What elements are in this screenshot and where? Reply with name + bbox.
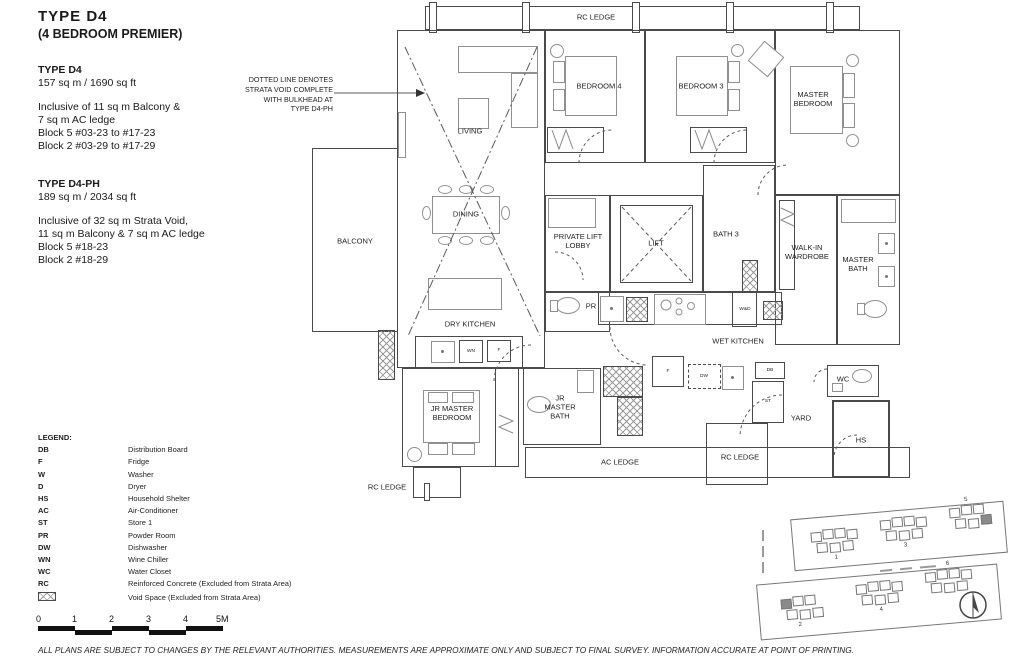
plan-graphic xyxy=(880,569,892,572)
plan-graphic xyxy=(810,532,822,543)
label-st: ST xyxy=(765,399,771,405)
legend-row: DWDishwasher xyxy=(38,542,298,554)
block-cluster: 6 xyxy=(925,569,977,599)
tv-console xyxy=(398,112,406,158)
bed-bench xyxy=(452,443,475,455)
spec-d4-line: Block 5 #03-23 to #17-23 xyxy=(38,127,268,140)
jr-wardrobe xyxy=(495,368,519,467)
coffee-table xyxy=(458,98,489,129)
plan-graphic: STRATA VOID COMPLETE xyxy=(243,85,333,95)
block-cluster-highlighted: 5 xyxy=(949,504,1001,534)
block-number: 2 xyxy=(798,622,802,628)
pillow xyxy=(843,73,855,98)
label-dining: DINING xyxy=(453,210,479,219)
dining-chair xyxy=(422,206,431,220)
legend-title: LEGEND: xyxy=(38,432,298,444)
toilet-tank xyxy=(857,303,865,315)
window-tick xyxy=(726,2,734,33)
sink-dot xyxy=(731,376,734,379)
pillow xyxy=(452,392,474,403)
wardrobe xyxy=(547,127,604,153)
plan-graphic xyxy=(911,528,923,539)
label-dry-kitchen: DRY KITCHEN xyxy=(445,320,496,329)
plan-graphic: F xyxy=(38,456,128,468)
legend-row: DBDistribution Board xyxy=(38,444,298,456)
window-tick xyxy=(826,2,834,33)
spec-d4-line: Inclusive of 11 sq m Balcony & xyxy=(38,101,268,114)
plan-graphic xyxy=(955,518,967,529)
label-db: DB xyxy=(767,368,774,374)
toilet-tank xyxy=(550,300,558,312)
plan-graphic xyxy=(936,569,948,580)
label-bedroom-4: BEDROOM 4 xyxy=(576,82,621,91)
spec-d4ph-area: 189 sq m / 2034 sq ft xyxy=(38,191,268,204)
page-subtitle: (4 BEDROOM PREMIER) xyxy=(38,27,182,41)
plan-graphic: RC xyxy=(38,578,128,590)
label-bath-3: BATH 3 xyxy=(713,230,739,239)
plan-graphic xyxy=(925,572,937,583)
void-space-icon xyxy=(38,592,56,601)
label-jr-master-bath: JR MASTER BATH xyxy=(541,394,579,421)
label-master-bath: MASTER BATH xyxy=(839,255,877,273)
scale-segment xyxy=(112,626,149,631)
street-text-mark xyxy=(762,530,764,541)
sink-dot xyxy=(885,275,888,278)
void-column xyxy=(378,330,395,380)
spec-d4ph-line: Block 5 #18-23 xyxy=(38,241,268,254)
plan-graphic: TYPE D4-PH xyxy=(243,104,333,114)
spec-d4-name: TYPE D4 xyxy=(38,64,268,77)
plan-graphic: DOTTED LINE DENOTES xyxy=(243,75,333,85)
plan-graphic: W xyxy=(38,469,128,481)
sofa xyxy=(511,73,538,128)
bed-bench xyxy=(428,443,448,455)
plan-graphic xyxy=(874,594,886,605)
street-text-mark xyxy=(762,562,764,573)
plan-graphic xyxy=(886,530,898,541)
plan-graphic: HS xyxy=(38,493,128,505)
window-tick xyxy=(429,2,437,33)
plan-graphic xyxy=(816,542,828,553)
plan-graphic: D xyxy=(38,481,128,493)
void-duct xyxy=(603,366,643,397)
disclaimer: ALL PLANS ARE SUBJECT TO CHANGES BY THE … xyxy=(38,645,854,655)
plan-graphic xyxy=(915,517,927,528)
scale-tick: 3 xyxy=(146,614,151,624)
rc-ledge-bottom-left-strip xyxy=(413,467,461,498)
plan-graphic xyxy=(900,567,912,570)
plan-graphic xyxy=(799,609,811,620)
plan-graphic xyxy=(948,568,960,579)
dining-chair xyxy=(459,236,473,245)
plan-graphic xyxy=(920,565,936,568)
basin xyxy=(577,370,594,393)
label-dw: DW xyxy=(700,374,708,380)
plan-graphic xyxy=(961,569,973,580)
wardrobe xyxy=(690,127,747,153)
plan-graphic: PR xyxy=(38,530,128,542)
toilet xyxy=(556,297,580,314)
block-number: 4 xyxy=(879,607,883,613)
legend-row: FFridge xyxy=(38,456,298,468)
label-rc-ledge-top: RC LEDGE xyxy=(577,13,615,22)
wc-room xyxy=(827,365,879,397)
block-number: 5 xyxy=(964,497,968,503)
void-duct xyxy=(617,397,643,436)
label-balcony: BALCONY xyxy=(337,237,373,246)
label-private-lift-lobby: PRIVATE LIFT LOBBY xyxy=(552,232,604,250)
label-bedroom-3: BEDROOM 3 xyxy=(678,82,723,91)
label-hs: HS xyxy=(856,436,866,445)
plan-graphic: Dishwasher xyxy=(128,543,167,552)
plan-graphic xyxy=(786,609,798,620)
plan-graphic xyxy=(956,580,968,591)
block-number: 3 xyxy=(904,542,908,548)
block-cluster: 4 xyxy=(855,581,907,611)
plan-graphic: AC xyxy=(38,505,128,517)
scale-tick: 0 xyxy=(36,614,41,624)
plan-graphic xyxy=(842,540,854,551)
legend-row: PRPowder Room xyxy=(38,530,298,542)
plan-graphic xyxy=(855,584,867,595)
legend-row: HSHousehold Shelter xyxy=(38,493,298,505)
plan-graphic xyxy=(804,595,816,606)
scale-tick: 1 xyxy=(72,614,77,624)
legend-row: ACAir-Conditioner xyxy=(38,505,298,517)
plan-graphic: WITH BULKHEAD AT xyxy=(243,95,333,105)
label-wc: WC xyxy=(837,375,850,384)
sink-dot xyxy=(885,242,888,245)
plan-graphic: Reinforced Concrete (Excluded from Strat… xyxy=(128,579,291,588)
site-key-plan: 1 3 5 2 xyxy=(750,498,1020,633)
plan-graphic: WC xyxy=(38,566,128,578)
bath-3-room xyxy=(703,165,775,292)
side-table xyxy=(550,44,564,58)
pillow xyxy=(728,61,740,83)
legend-row: STStore 1 xyxy=(38,517,298,529)
toilet xyxy=(863,300,887,318)
spec-d4-line: 7 sq m AC ledge xyxy=(38,114,268,127)
dining-chair xyxy=(480,185,494,194)
label-living: LIVING xyxy=(458,127,483,136)
dining-chair xyxy=(438,185,452,194)
duct-box xyxy=(626,297,648,322)
plan-graphic: Wine Chiller xyxy=(128,555,168,564)
plan-graphic: Distribution Board xyxy=(128,445,188,454)
spec-d4-line: Block 2 #03-29 to #17-29 xyxy=(38,140,268,153)
plan-graphic xyxy=(829,542,841,553)
plan-graphic xyxy=(899,530,911,541)
plan-graphic xyxy=(38,204,268,215)
plan-graphic xyxy=(891,517,903,528)
plan-graphic xyxy=(834,528,846,539)
dining-chair xyxy=(438,236,452,245)
plan-graphic xyxy=(822,529,834,540)
plan-graphic: Fridge xyxy=(128,457,149,466)
label-ac-ledge: AC LEDGE xyxy=(601,458,639,467)
legend-row: DDryer xyxy=(38,481,298,493)
street-text-mark xyxy=(762,546,764,557)
site-parcel-bottom: 2 4 6 xyxy=(756,564,1002,641)
plan-graphic: Void Space (Excluded from Strata Area) xyxy=(128,593,261,602)
plan-graphic: WN xyxy=(38,554,128,566)
plan-graphic xyxy=(861,595,873,606)
wc-door-arc xyxy=(814,369,827,382)
plan-graphic xyxy=(891,581,903,592)
pillow xyxy=(553,61,565,83)
pillow xyxy=(728,89,740,111)
plan-graphic xyxy=(931,582,943,593)
plan-graphic xyxy=(38,90,268,101)
plan-graphic xyxy=(903,516,915,527)
sink-dot xyxy=(441,350,444,353)
plan-graphic xyxy=(968,518,980,529)
scale-tick: 4 xyxy=(183,614,188,624)
plan-graphic xyxy=(792,596,804,607)
floor-plan-page: TYPE D4 (4 BEDROOM PREMIER) TYPE D4 157 … xyxy=(0,0,1024,662)
kitchen-island xyxy=(428,278,502,310)
label-rc-ledge-bottom-right: RC LEDGE xyxy=(721,453,759,462)
legend-row: WWasher xyxy=(38,469,298,481)
hob xyxy=(654,294,706,325)
plan-graphic xyxy=(973,504,985,515)
console-cabinet xyxy=(548,198,596,228)
scale-segment xyxy=(75,630,112,635)
pillow xyxy=(428,392,448,403)
plan-graphic: Water Closet xyxy=(128,567,171,576)
plan-graphic xyxy=(961,505,973,516)
dining-chair xyxy=(459,185,473,194)
legend-row: WNWine Chiller xyxy=(38,554,298,566)
strata-void-note: DOTTED LINE DENOTES STRATA VOID COMPLETE… xyxy=(243,75,333,114)
spec-d4-area: 157 sq m / 1690 sq ft xyxy=(38,77,268,90)
label-jr-master-bedroom: JR MASTER BEDROOM xyxy=(421,404,483,422)
plan-graphic xyxy=(812,607,824,618)
plan-graphic: DB xyxy=(38,444,128,456)
block-cluster: 1 xyxy=(810,528,862,558)
label-pr: PR xyxy=(586,302,596,311)
duct-box xyxy=(763,301,783,320)
pillow xyxy=(843,103,855,128)
legend-row: RCReinforced Concrete (Excluded from Str… xyxy=(38,578,298,590)
plan-graphic: DW xyxy=(38,542,128,554)
block-cluster-highlighted: 2 xyxy=(780,593,832,623)
dining-chair xyxy=(501,206,510,220)
block-cluster: 3 xyxy=(880,516,932,546)
rc-ledge-top xyxy=(425,6,860,30)
legend-row-void: Void Space (Excluded from Strata Area) xyxy=(38,591,298,604)
spec-type-d4: TYPE D4 157 sq m / 1690 sq ft Inclusive … xyxy=(38,64,268,153)
plan-graphic: ST xyxy=(38,517,128,529)
spec-d4ph-line: Block 2 #18-29 xyxy=(38,254,268,267)
plan-graphic: Household Shelter xyxy=(128,494,190,503)
legend: LEGEND: DBDistribution Board FFridge WWa… xyxy=(38,432,298,604)
dining-chair xyxy=(480,236,494,245)
plan-graphic: Air-Conditioner xyxy=(128,506,178,515)
label-f-dry: F xyxy=(498,348,501,354)
plan-graphic xyxy=(944,582,956,593)
plan-graphic xyxy=(38,591,128,604)
sink-dot xyxy=(610,307,613,310)
side-table xyxy=(846,134,859,147)
label-rc-ledge-bottom-left: RC LEDGE xyxy=(368,483,406,492)
scale-tick: 5M xyxy=(216,614,229,624)
plan-graphic xyxy=(880,520,892,531)
window-tick xyxy=(522,2,530,33)
window-tick xyxy=(424,483,430,501)
spec-d4ph-line: 11 sq m Balcony & 7 sq m AC ledge xyxy=(38,228,268,241)
window-tick xyxy=(632,2,640,33)
label-walk-in-wardrobe: WALK-IN WARDROBE xyxy=(782,243,832,261)
shower xyxy=(841,199,896,223)
spec-d4ph-line: Inclusive of 32 sq m Strata Void, xyxy=(38,215,268,228)
block-number: 1 xyxy=(834,554,838,560)
scale-segment xyxy=(149,630,186,635)
plan-graphic xyxy=(846,529,858,540)
plan-graphic: Washer xyxy=(128,470,154,479)
label-master-bedroom: MASTER BEDROOM xyxy=(788,90,838,108)
highlighted-unit xyxy=(980,514,992,525)
plan-graphic xyxy=(867,581,879,592)
plan-graphic xyxy=(949,508,961,519)
block-number: 6 xyxy=(946,561,950,567)
side-table xyxy=(407,447,422,462)
sofa xyxy=(458,46,538,73)
scale-tick: 2 xyxy=(109,614,114,624)
plan-graphic: Powder Room xyxy=(128,531,176,540)
basin xyxy=(832,383,843,392)
side-table xyxy=(731,44,744,57)
entry-door-arc xyxy=(610,327,648,365)
plan-graphic xyxy=(879,580,891,591)
toilet xyxy=(852,369,872,383)
highlighted-unit xyxy=(780,599,792,610)
label-yard: YARD xyxy=(791,414,811,423)
legend-row: WCWater Closet xyxy=(38,566,298,578)
label-wn: WN xyxy=(467,349,475,355)
plan-graphic: Store 1 xyxy=(128,518,152,527)
scale-segment xyxy=(186,626,223,631)
label-wet-kitchen: WET KITCHEN xyxy=(712,337,764,346)
label-lift: LIFT xyxy=(648,239,663,248)
label-wd: W&D xyxy=(739,307,750,313)
scale-segment xyxy=(38,626,75,631)
plan-graphic: Dryer xyxy=(128,482,146,491)
page-title: TYPE D4 xyxy=(38,8,108,25)
side-table xyxy=(846,54,859,67)
spec-d4ph-name: TYPE D4-PH xyxy=(38,178,268,191)
label-f-wet: F xyxy=(667,369,670,375)
duct-box xyxy=(742,260,758,292)
pillow xyxy=(553,89,565,111)
spec-type-d4-ph: TYPE D4-PH 189 sq m / 2034 sq ft Inclusi… xyxy=(38,178,268,267)
plan-graphic xyxy=(887,592,899,603)
